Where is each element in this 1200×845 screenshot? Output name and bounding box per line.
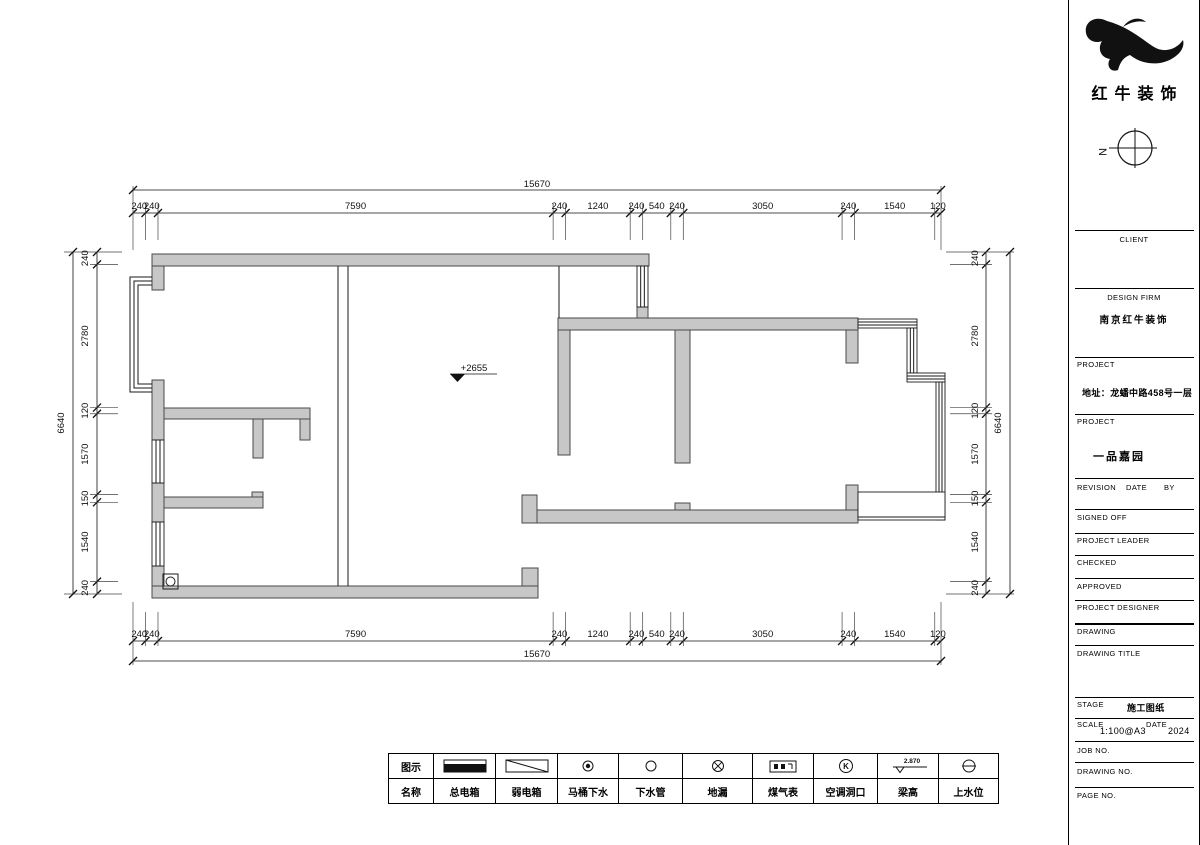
ac-opening-icon: K [820, 755, 872, 777]
svg-text:240: 240 [551, 201, 567, 212]
titleblock-separator [1075, 600, 1194, 601]
design-firm-value: 南京红牛装饰 [1069, 312, 1199, 326]
wall-segment [164, 497, 263, 508]
wall-segment [537, 510, 858, 523]
level-mark-value: +2655 [461, 363, 488, 374]
project2-label: PROJECT [1077, 417, 1115, 426]
svg-text:15670: 15670 [524, 179, 550, 190]
legend-symbol-cell [496, 754, 558, 779]
legend-symbol-cell: K [814, 754, 878, 779]
wall-segment [252, 492, 263, 497]
north-arrow: N [1091, 118, 1177, 180]
svg-text:6640: 6640 [56, 412, 67, 433]
by-label: BY [1164, 483, 1175, 492]
titleblock-separator [1075, 509, 1194, 510]
stage-label: STAGE [1077, 700, 1104, 709]
page-no-label: PAGE NO. [1077, 791, 1116, 800]
svg-text:240: 240 [80, 580, 91, 596]
dimension-bottom: 2402407590240124024054024030502401540120… [129, 602, 946, 665]
titleblock-separator [1075, 623, 1194, 625]
legend-symbol-cell [558, 754, 619, 779]
svg-text:2780: 2780 [80, 325, 91, 346]
project-name: 一品嘉园 [1093, 448, 1145, 464]
svg-text:7590: 7590 [345, 629, 366, 640]
svg-text:120: 120 [930, 629, 946, 640]
wall-segment [300, 419, 310, 440]
legend-name-cell: 梁高 [878, 779, 939, 804]
wall-segment [152, 254, 649, 266]
svg-text:240: 240 [629, 201, 645, 212]
wall-segment [152, 483, 164, 522]
titleblock-separator [1075, 533, 1194, 534]
svg-text:K: K [843, 762, 849, 771]
scale-value: 1:100@A3 [1100, 726, 1146, 736]
svg-text:540: 540 [649, 201, 665, 212]
partition-lines [338, 266, 559, 586]
job-no-label: JOB NO. [1077, 746, 1110, 755]
date2-label: DATE [1146, 720, 1167, 729]
svg-text:3050: 3050 [752, 629, 773, 640]
titleblock-separator [1075, 718, 1194, 719]
project-designer-label: PROJECT DESIGNER [1077, 603, 1160, 612]
level-mark: +2655 [450, 363, 497, 382]
company-name: 红牛装饰 [1069, 80, 1199, 104]
svg-text:2.870: 2.870 [904, 758, 921, 765]
wall-segment [152, 586, 538, 598]
legend-symbol-cell [683, 754, 753, 779]
checked-label: CHECKED [1077, 558, 1116, 567]
window [637, 266, 648, 307]
wall-segment [675, 503, 690, 510]
svg-text:120: 120 [80, 403, 91, 419]
dimension-top: 2402407590240124024054024030502401540120… [129, 179, 946, 250]
dimension-left: 2402780120157015015402406640 [56, 248, 122, 598]
svg-text:240: 240 [144, 201, 160, 212]
svg-text:7590: 7590 [345, 201, 366, 212]
date2-value: 2024 [1168, 726, 1190, 736]
svg-text:240: 240 [840, 629, 856, 640]
wall-segment [253, 419, 263, 458]
svg-text:240: 240 [669, 201, 685, 212]
date-label: DATE [1126, 483, 1147, 492]
drawing-label: DRAWING [1077, 627, 1116, 636]
wall-segment [637, 307, 648, 318]
bay-window [130, 277, 152, 392]
client-label: CLIENT [1069, 235, 1199, 244]
wall-segment [152, 380, 164, 440]
titleblock-separator [1075, 787, 1194, 788]
project-address: 地址：龙蟠中路458号一层 [1082, 386, 1192, 399]
window [907, 373, 945, 382]
north-label: N [1096, 148, 1108, 156]
svg-text:150: 150 [80, 491, 91, 507]
window [152, 440, 164, 483]
company-logo-icon [1077, 12, 1191, 76]
beam-height-icon: 2.870 [882, 755, 934, 777]
svg-text:240: 240 [144, 629, 160, 640]
wall-segment [675, 330, 690, 463]
svg-text:1240: 1240 [587, 201, 608, 212]
svg-text:150: 150 [970, 491, 981, 507]
wall-segment [846, 485, 858, 510]
legend-name-cell: 弱电箱 [496, 779, 558, 804]
legend-name-cell: 煤气表 [753, 779, 814, 804]
revision-label: REVISION [1077, 483, 1116, 492]
legend-name-cell: 马桶下水 [558, 779, 619, 804]
legend-table: 图示K2.870名称总电箱弱电箱马桶下水下水管地漏煤气表空调洞口梁高上水位 [388, 753, 999, 804]
design-firm-label: DESIGN FIRM [1069, 293, 1199, 302]
svg-text:1570: 1570 [80, 444, 91, 465]
legend-header-symbol: 图示 [389, 754, 434, 779]
titleblock-separator [1075, 578, 1194, 579]
wall-segment [846, 330, 858, 363]
svg-text:15670: 15670 [524, 649, 550, 660]
titleblock-separator [1075, 555, 1194, 556]
window [907, 328, 917, 373]
project1-label: PROJECT [1077, 360, 1115, 369]
title-block: 红牛装饰 N CLIENT DESIGN FIRM 南京红牛装饰 PROJECT… [1068, 0, 1200, 845]
project-leader-label: PROJECT LEADER [1077, 536, 1150, 545]
svg-text:3050: 3050 [752, 201, 773, 212]
floor-drain-icon [692, 755, 744, 777]
svg-text:1540: 1540 [970, 531, 981, 552]
window [152, 522, 164, 566]
svg-text:120: 120 [930, 201, 946, 212]
legend-name-cell: 总电箱 [434, 779, 496, 804]
drawing-sheet: +265524024075902401240240540240305024015… [0, 0, 1200, 845]
dimension-right: 2402780120157015015402406640 [946, 248, 1014, 598]
stage-value: 施工图纸 [1127, 701, 1165, 714]
approved-label: APPROVED [1077, 582, 1122, 591]
svg-text:1570: 1570 [970, 444, 981, 465]
titleblock-separator [1075, 741, 1194, 742]
legend-name-cell: 空调洞口 [814, 779, 878, 804]
legend-header-name: 名称 [389, 779, 434, 804]
svg-text:1540: 1540 [80, 531, 91, 552]
wall-segment [522, 495, 537, 523]
legend-symbol-cell [939, 754, 999, 779]
legend-symbol-cell [434, 754, 496, 779]
legend-name-cell: 下水管 [619, 779, 683, 804]
svg-text:120: 120 [970, 403, 981, 419]
svg-text:240: 240 [840, 201, 856, 212]
titleblock-separator [1075, 288, 1194, 289]
legend-symbol-cell [753, 754, 814, 779]
weak-power-box-icon [501, 755, 553, 777]
drain-pipe-icon [625, 755, 677, 777]
drawing-no-label: DRAWING NO. [1077, 767, 1133, 776]
svg-text:240: 240 [80, 250, 91, 266]
legend-symbol-cell: 2.870 [878, 754, 939, 779]
legend-name-cell: 地漏 [683, 779, 753, 804]
svg-text:1540: 1540 [884, 201, 905, 212]
wall-segment [164, 408, 310, 419]
titleblock-separator [1075, 762, 1194, 763]
titleblock-separator [1075, 414, 1194, 415]
svg-text:240: 240 [629, 629, 645, 640]
svg-text:240: 240 [551, 629, 567, 640]
window [858, 319, 917, 328]
walls [152, 254, 858, 598]
main-power-box-icon [439, 755, 491, 777]
titleblock-separator [1075, 357, 1194, 358]
wall-segment [152, 266, 164, 290]
floor-plan: +265524024075902401240240540240305024015… [0, 0, 1068, 845]
window [858, 492, 945, 520]
titleblock-separator [1075, 478, 1194, 479]
drawing-title-label: DRAWING TITLE [1077, 649, 1141, 658]
wall-segment [558, 318, 858, 330]
titleblock-separator [1075, 645, 1194, 646]
toilet-drain-icon [562, 755, 614, 777]
titleblock-separator [1075, 230, 1194, 231]
wall-segment [558, 330, 570, 455]
legend-symbol-cell [619, 754, 683, 779]
gas-meter-icon [757, 755, 809, 777]
titleblock-separator [1075, 697, 1194, 698]
svg-text:540: 540 [649, 629, 665, 640]
svg-text:2780: 2780 [970, 325, 981, 346]
water-supply-icon [943, 755, 995, 777]
legend-name-cell: 上水位 [939, 779, 999, 804]
signed-off-label: SIGNED OFF [1077, 513, 1127, 522]
svg-text:240: 240 [669, 629, 685, 640]
svg-text:240: 240 [970, 580, 981, 596]
svg-text:240: 240 [970, 250, 981, 266]
svg-text:1240: 1240 [587, 629, 608, 640]
svg-text:1540: 1540 [884, 629, 905, 640]
wall-segment [522, 568, 538, 586]
svg-text:6640: 6640 [993, 412, 1004, 433]
